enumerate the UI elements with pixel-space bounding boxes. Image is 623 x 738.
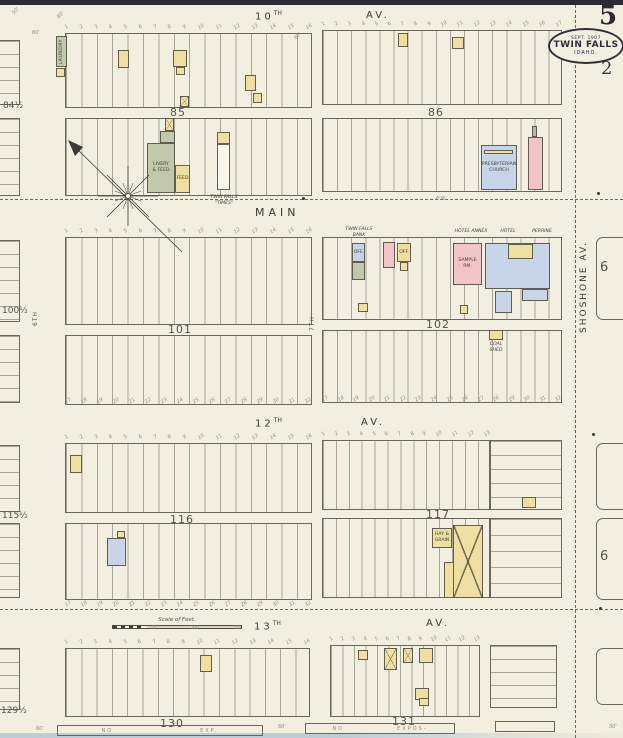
repeat-item: 10 bbox=[435, 430, 444, 439]
street-label-13th-av: AV. bbox=[426, 618, 450, 629]
repeat-item: 9 bbox=[182, 24, 188, 31]
repeat-item: 4 bbox=[362, 636, 368, 643]
repeat-item: 16 bbox=[538, 20, 547, 29]
repeat-item: 14 bbox=[269, 227, 278, 236]
street-label-10th: 10TH bbox=[255, 10, 282, 22]
repeat-item: 10 bbox=[440, 20, 449, 29]
repeat-item: 1 bbox=[64, 24, 70, 31]
repeat-item: 8 bbox=[409, 431, 415, 438]
repeat-item: 1 bbox=[321, 21, 327, 28]
dashed-line-shoshone bbox=[575, 5, 576, 738]
repeat-item: 16 bbox=[302, 638, 311, 647]
repeat-item: 3 bbox=[93, 434, 99, 441]
sanborn-map-sheet: 10TH AV. MAIN 12TH AV. 13TH AV. SHOSHONE… bbox=[0, 0, 623, 738]
note-no-exposure-left: NO EXP. bbox=[57, 725, 263, 736]
repeat-item: 6 bbox=[384, 431, 390, 438]
repeat-item: 12 bbox=[233, 433, 242, 442]
repeat-item: 5 bbox=[371, 431, 377, 438]
repeat-item: 23 bbox=[160, 600, 169, 609]
scale-bar: Scale of Feet. 50100150 bbox=[112, 617, 242, 635]
lot-numbers-102s: 17181920212223242526272829303132 bbox=[322, 396, 562, 402]
edge-strip-84 bbox=[0, 40, 20, 105]
street-label-10th-av: AV. bbox=[366, 10, 390, 21]
repeat-item: 3 bbox=[93, 24, 99, 31]
repeat-item: 14 bbox=[269, 433, 278, 442]
edge-block-6-upper bbox=[596, 237, 623, 320]
building-shed-2 bbox=[176, 67, 185, 75]
repeat-item: 11 bbox=[215, 433, 224, 442]
repeat-item: 25 bbox=[192, 600, 201, 609]
corner-dot-0 bbox=[597, 192, 600, 195]
block-number-6-lower: 6 bbox=[600, 549, 608, 564]
repeat-item: 24 bbox=[176, 600, 185, 609]
lot-numbers-131: 12345678910111213 bbox=[330, 636, 480, 642]
block-number-129: 129½ bbox=[1, 706, 27, 716]
repeat-item: 11 bbox=[456, 20, 465, 29]
block-131-east bbox=[490, 645, 557, 708]
repeat-item: 5 bbox=[373, 21, 379, 28]
repeat-item: 6 bbox=[137, 24, 143, 31]
building-times-front bbox=[217, 132, 230, 144]
building-dwelling-2 bbox=[173, 50, 187, 67]
repeat-item: 15 bbox=[287, 433, 296, 442]
note-text: NO bbox=[332, 726, 344, 732]
map-label-1: TWIN FALLS BANK bbox=[344, 227, 374, 239]
building-dwelling-5 bbox=[452, 37, 464, 49]
corner-dot-1 bbox=[302, 197, 305, 200]
repeat-item: 3 bbox=[346, 431, 352, 438]
building-times-office bbox=[217, 144, 230, 190]
repeat-item: 9 bbox=[418, 636, 424, 643]
sheet-number: 5 bbox=[599, 1, 617, 31]
note-text: NO bbox=[101, 728, 113, 734]
building-shed-3 bbox=[253, 93, 262, 103]
street-label-6th: 6TH bbox=[32, 311, 39, 326]
repeat-item: 11 bbox=[451, 430, 460, 439]
repeat-item: 2 bbox=[78, 434, 84, 441]
repeat-item: 2 bbox=[78, 24, 84, 31]
repeat-item: 12 bbox=[233, 23, 242, 32]
dimension-mark-1: 80' bbox=[56, 10, 66, 20]
repeat-item: 12 bbox=[233, 227, 242, 236]
repeat-item: 13 bbox=[489, 20, 498, 29]
repeat-item: 27 bbox=[224, 600, 233, 609]
repeat-item: 7 bbox=[151, 639, 157, 646]
block-number-101: 101 bbox=[168, 323, 192, 336]
repeat-item: 13 bbox=[251, 23, 260, 32]
repeat-item: 9 bbox=[182, 434, 188, 441]
repeat-item: 8 bbox=[167, 24, 173, 31]
building-shed-1 bbox=[56, 68, 65, 77]
repeat-item: 15 bbox=[285, 638, 294, 647]
building-dwelling-10 bbox=[419, 648, 433, 663]
repeat-item: 12 bbox=[472, 20, 481, 29]
repeat-item: 16 bbox=[304, 433, 313, 442]
map-label-5: COAL SHED bbox=[483, 342, 509, 354]
repeat-item: 3 bbox=[351, 636, 357, 643]
building-hay-grain: HAY & GRAIN bbox=[432, 528, 452, 548]
building-implement-shed bbox=[444, 562, 454, 598]
repeat-item: 5 bbox=[122, 639, 128, 646]
building-label: HAY & GRAIN bbox=[435, 532, 450, 543]
repeat-item: 15 bbox=[522, 20, 531, 29]
publisher-stamp: SEPT. 1907 TWIN FALLS IDAHO. bbox=[548, 28, 623, 64]
building-shed-7 bbox=[358, 650, 368, 660]
repeat-item: 11 bbox=[444, 635, 453, 644]
street-label-shoshone: SHOSHONE AV. bbox=[579, 238, 589, 333]
building-dwelling-3 bbox=[245, 75, 256, 91]
repeat-item: 12 bbox=[467, 430, 476, 439]
dashed-line-13th bbox=[0, 609, 623, 610]
dimension-mark-6: 60' bbox=[278, 724, 286, 730]
street-label-12th-av: AV. bbox=[361, 417, 385, 428]
compass-rose-icon bbox=[55, 128, 205, 263]
corner-dot-2 bbox=[592, 433, 595, 436]
building-label: SAMPLE RM. bbox=[458, 258, 476, 269]
lot-numbers-85: 12345678910111213141516 bbox=[65, 24, 312, 30]
repeat-item: 9 bbox=[181, 639, 187, 646]
repeat-item: 12 bbox=[458, 635, 467, 644]
edge-block-6-mid bbox=[596, 443, 623, 510]
dimension-mark-7: 50' bbox=[609, 724, 617, 730]
building-dwelling-8 bbox=[522, 497, 536, 508]
repeat-item: 50 bbox=[151, 625, 156, 630]
repeat-item: 18 bbox=[80, 600, 89, 609]
block-number-84: 84½ bbox=[3, 101, 23, 111]
repeat-item: 11 bbox=[213, 638, 222, 647]
note-text: EXP. bbox=[200, 728, 218, 734]
lot-numbers-116s: 17181920212223242526272829303132 bbox=[65, 601, 312, 607]
repeat-item: 6 bbox=[387, 21, 393, 28]
map-label-2: HOTEL ANNEX bbox=[450, 229, 492, 235]
repeat-item: 8 bbox=[407, 636, 413, 643]
repeat-item: 5 bbox=[123, 434, 129, 441]
repeat-item: 7 bbox=[400, 21, 406, 28]
repeat-item: 13 bbox=[482, 430, 491, 439]
repeat-item: 7 bbox=[397, 431, 403, 438]
repeat-item: 150 bbox=[233, 625, 241, 630]
building-brick-store-2 bbox=[383, 242, 395, 268]
map-label-3: HOTEL bbox=[496, 229, 520, 235]
repeat-item: 3 bbox=[93, 639, 99, 646]
repeat-item: 10 bbox=[197, 23, 206, 32]
repeat-item: 21 bbox=[128, 600, 137, 609]
repeat-item: 28 bbox=[240, 600, 249, 609]
building-label: OFF. bbox=[399, 250, 409, 256]
street-label-12th: 12TH bbox=[255, 417, 282, 429]
repeat-item: 1 bbox=[64, 639, 70, 646]
building-shed-9 bbox=[419, 698, 429, 706]
repeat-item: 2 bbox=[334, 21, 340, 28]
repeat-item: 11 bbox=[215, 227, 224, 236]
building-dwelling-7 bbox=[107, 538, 126, 566]
building-laundry: LAUNDRY bbox=[56, 36, 67, 67]
repeat-item: 4 bbox=[108, 434, 114, 441]
note-empty-rect bbox=[495, 721, 555, 732]
scale-bar-rule: 50100150 bbox=[112, 625, 242, 629]
street-label-main: MAIN bbox=[255, 206, 300, 219]
repeat-item: 13 bbox=[472, 635, 481, 644]
edge-strip-115 bbox=[0, 445, 20, 512]
repeat-item: 6 bbox=[137, 639, 143, 646]
lot-numbers-86: 1234567891011121314151617 bbox=[322, 21, 562, 27]
repeat-item: 2 bbox=[78, 639, 84, 646]
repeat-item: 17 bbox=[64, 600, 73, 609]
repeat-item: 15 bbox=[287, 23, 296, 32]
corner-dot-3 bbox=[599, 607, 602, 610]
repeat-item: 29 bbox=[256, 600, 265, 609]
building-shed-5 bbox=[460, 305, 468, 314]
block-number-115: 115½ bbox=[2, 511, 28, 521]
repeat-item: 10 bbox=[429, 635, 438, 644]
dimension-mark-2: 60' bbox=[32, 30, 40, 36]
repeat-item: 17 bbox=[554, 20, 563, 29]
repeat-item: 30 bbox=[272, 600, 281, 609]
block-86-north bbox=[322, 30, 562, 105]
building-barn-1 bbox=[180, 96, 189, 107]
repeat-item: 9 bbox=[422, 431, 428, 438]
building-hotel-wing-1 bbox=[522, 289, 548, 301]
repeat-item: 1 bbox=[64, 434, 70, 441]
block-101-south bbox=[65, 335, 312, 405]
block-116-south bbox=[65, 523, 312, 600]
block-number-100: 100½ bbox=[2, 306, 28, 316]
block-86-south bbox=[322, 118, 562, 192]
repeat-item: 10 bbox=[195, 638, 204, 647]
edge-strip-129 bbox=[0, 648, 20, 710]
lot-numbers-117: 12345678910111213 bbox=[322, 431, 490, 437]
repeat-item: 8 bbox=[413, 21, 419, 28]
repeat-item: 100 bbox=[191, 625, 199, 630]
street-label-13th: 13TH bbox=[254, 620, 281, 632]
stamp-state: IDAHO. bbox=[574, 50, 598, 56]
repeat-item: 16 bbox=[304, 227, 313, 236]
repeat-item: 4 bbox=[360, 21, 366, 28]
building-dwelling-1 bbox=[118, 50, 129, 68]
building-dwelling-6 bbox=[70, 455, 82, 473]
repeat-item: 13 bbox=[251, 227, 260, 236]
repeat-item: 8 bbox=[167, 434, 173, 441]
repeat-item: 2 bbox=[333, 431, 339, 438]
building-sample-room: SAMPLE RM. bbox=[453, 243, 482, 285]
building-label: OFF. bbox=[354, 250, 364, 256]
block-117-north-west bbox=[322, 440, 490, 510]
building-shed-4 bbox=[400, 262, 408, 271]
repeat-item: 1 bbox=[321, 431, 327, 438]
repeat-item: 22 bbox=[144, 600, 153, 609]
dimension-mark-5: 60' bbox=[36, 726, 44, 732]
repeat-item: 11 bbox=[215, 23, 224, 32]
map-label-0: TWIN FALLS "TIMES" bbox=[205, 195, 243, 207]
dimension-mark-4: 6'W. bbox=[436, 196, 447, 202]
repeat-item: 20 bbox=[112, 600, 121, 609]
lot-numbers-116: 12345678910111213141516 bbox=[65, 434, 312, 440]
building-label: LAUNDRY bbox=[59, 39, 65, 64]
building-barn-3 bbox=[384, 648, 397, 670]
edge-strip-115s bbox=[0, 523, 20, 598]
building-dwelling-9 bbox=[200, 655, 212, 672]
building-church-porch bbox=[484, 150, 513, 154]
stamp-city: TWIN FALLS bbox=[553, 41, 618, 50]
block-116-north bbox=[65, 443, 312, 513]
street-label-7th: 7TH bbox=[309, 316, 316, 331]
repeat-item: 14 bbox=[267, 638, 276, 647]
building-brick-store-1 bbox=[528, 137, 543, 190]
dimension-mark-0: 50' bbox=[11, 6, 21, 16]
building-hotel-wing-2 bbox=[495, 291, 512, 313]
edge-block-bottom bbox=[596, 648, 623, 705]
repeat-item: 5 bbox=[123, 24, 129, 31]
repeat-item: 6 bbox=[137, 434, 143, 441]
building-coal-shed bbox=[489, 330, 503, 340]
lot-numbers-101s: 17181920212223242526272829303132 bbox=[65, 398, 312, 404]
block-102-south bbox=[322, 330, 562, 403]
block-number-102: 102 bbox=[426, 318, 450, 331]
building-printing-shop bbox=[352, 262, 365, 280]
repeat-item: 13 bbox=[249, 638, 258, 647]
block-130 bbox=[65, 648, 310, 717]
building-chimney-1 bbox=[532, 126, 537, 137]
note-text: EXPOS- bbox=[397, 726, 428, 732]
block-117-south-east bbox=[490, 518, 562, 598]
scan-top-edge bbox=[0, 0, 623, 5]
building-office-2: OFF. bbox=[397, 243, 411, 262]
lot-numbers-130: 12345678910111213141516 bbox=[65, 639, 310, 645]
repeat-item: 4 bbox=[108, 24, 114, 31]
repeat-item: 10 bbox=[197, 433, 206, 442]
repeat-item: 7 bbox=[396, 636, 402, 643]
scale-ticks: 50100150 bbox=[151, 625, 241, 630]
building-bank-office: OFF. bbox=[352, 243, 365, 262]
repeat-item: 14 bbox=[269, 23, 278, 32]
repeat-item: 26 bbox=[208, 600, 217, 609]
building-dwelling-4 bbox=[398, 33, 408, 47]
edge-strip-84s bbox=[0, 118, 20, 196]
scale-title: Scale of Feet. bbox=[112, 617, 242, 623]
map-label-4: PERRINE bbox=[526, 229, 558, 235]
repeat-item: 6 bbox=[384, 636, 390, 643]
block-number-86: 86 bbox=[428, 106, 444, 119]
repeat-item: 13 bbox=[251, 433, 260, 442]
repeat-item: 7 bbox=[152, 24, 158, 31]
repeat-item: 19 bbox=[96, 600, 105, 609]
building-barn-4 bbox=[403, 648, 413, 663]
repeat-item: 31 bbox=[288, 600, 297, 609]
repeat-item: 4 bbox=[107, 639, 113, 646]
repeat-item: 14 bbox=[505, 20, 514, 29]
block-number-6-upper: 6 bbox=[600, 260, 608, 275]
repeat-item: 32 bbox=[304, 600, 313, 609]
repeat-item: 15 bbox=[287, 227, 296, 236]
repeat-item: 3 bbox=[347, 21, 353, 28]
building-hotel-courtyard bbox=[508, 244, 533, 259]
building-shed-6 bbox=[117, 531, 125, 538]
repeat-item: 1 bbox=[329, 636, 335, 643]
repeat-item: 5 bbox=[373, 636, 379, 643]
repeat-item: 4 bbox=[359, 431, 365, 438]
block-number-117: 117 bbox=[426, 508, 450, 521]
repeat-item: 2 bbox=[340, 636, 346, 643]
repeat-item: 9 bbox=[426, 21, 432, 28]
edge-strip-100s bbox=[0, 335, 20, 403]
building-livery-barn bbox=[453, 525, 483, 598]
repeat-item: 8 bbox=[166, 639, 172, 646]
building-coal-house bbox=[358, 303, 368, 312]
repeat-item: 16 bbox=[304, 23, 313, 32]
repeat-item: 7 bbox=[152, 434, 158, 441]
repeat-item: 12 bbox=[231, 638, 240, 647]
note-no-exposure-right: NO EXPOS- bbox=[305, 723, 455, 734]
building-label: PRESBYTERIAN CHURCH bbox=[482, 162, 516, 173]
block-number-116: 116 bbox=[170, 513, 194, 526]
